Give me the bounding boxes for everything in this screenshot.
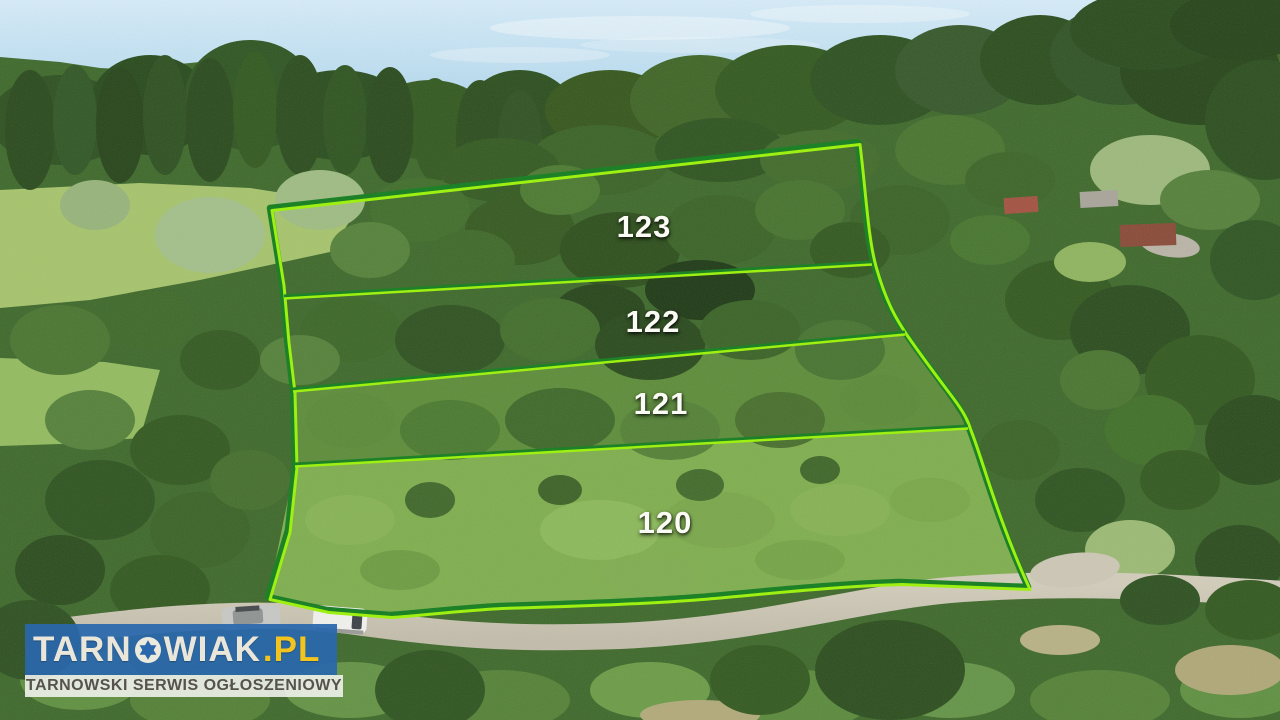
brand-prefix: TARN [33, 632, 132, 667]
brand-tld: .PL [263, 632, 320, 667]
plot-label-123: 123 [617, 209, 672, 245]
screenshot: 123 122 121 120 TARN WIAK .PL TARNOWSKI … [0, 0, 1280, 720]
star-icon [134, 636, 162, 664]
watermark: TARN WIAK .PL TARNOWSKI SERWIS OGŁOSZENI… [25, 624, 343, 697]
plot-label-121: 121 [634, 386, 689, 422]
brand-suffix: WIAK [164, 632, 261, 667]
aerial-photo [0, 0, 1280, 720]
tagline: TARNOWSKI SERWIS OGŁOSZENIOWY [25, 675, 343, 697]
plot-label-120: 120 [638, 505, 693, 541]
plot-label-122: 122 [626, 304, 681, 340]
brand-logo: TARN WIAK .PL [25, 624, 337, 675]
